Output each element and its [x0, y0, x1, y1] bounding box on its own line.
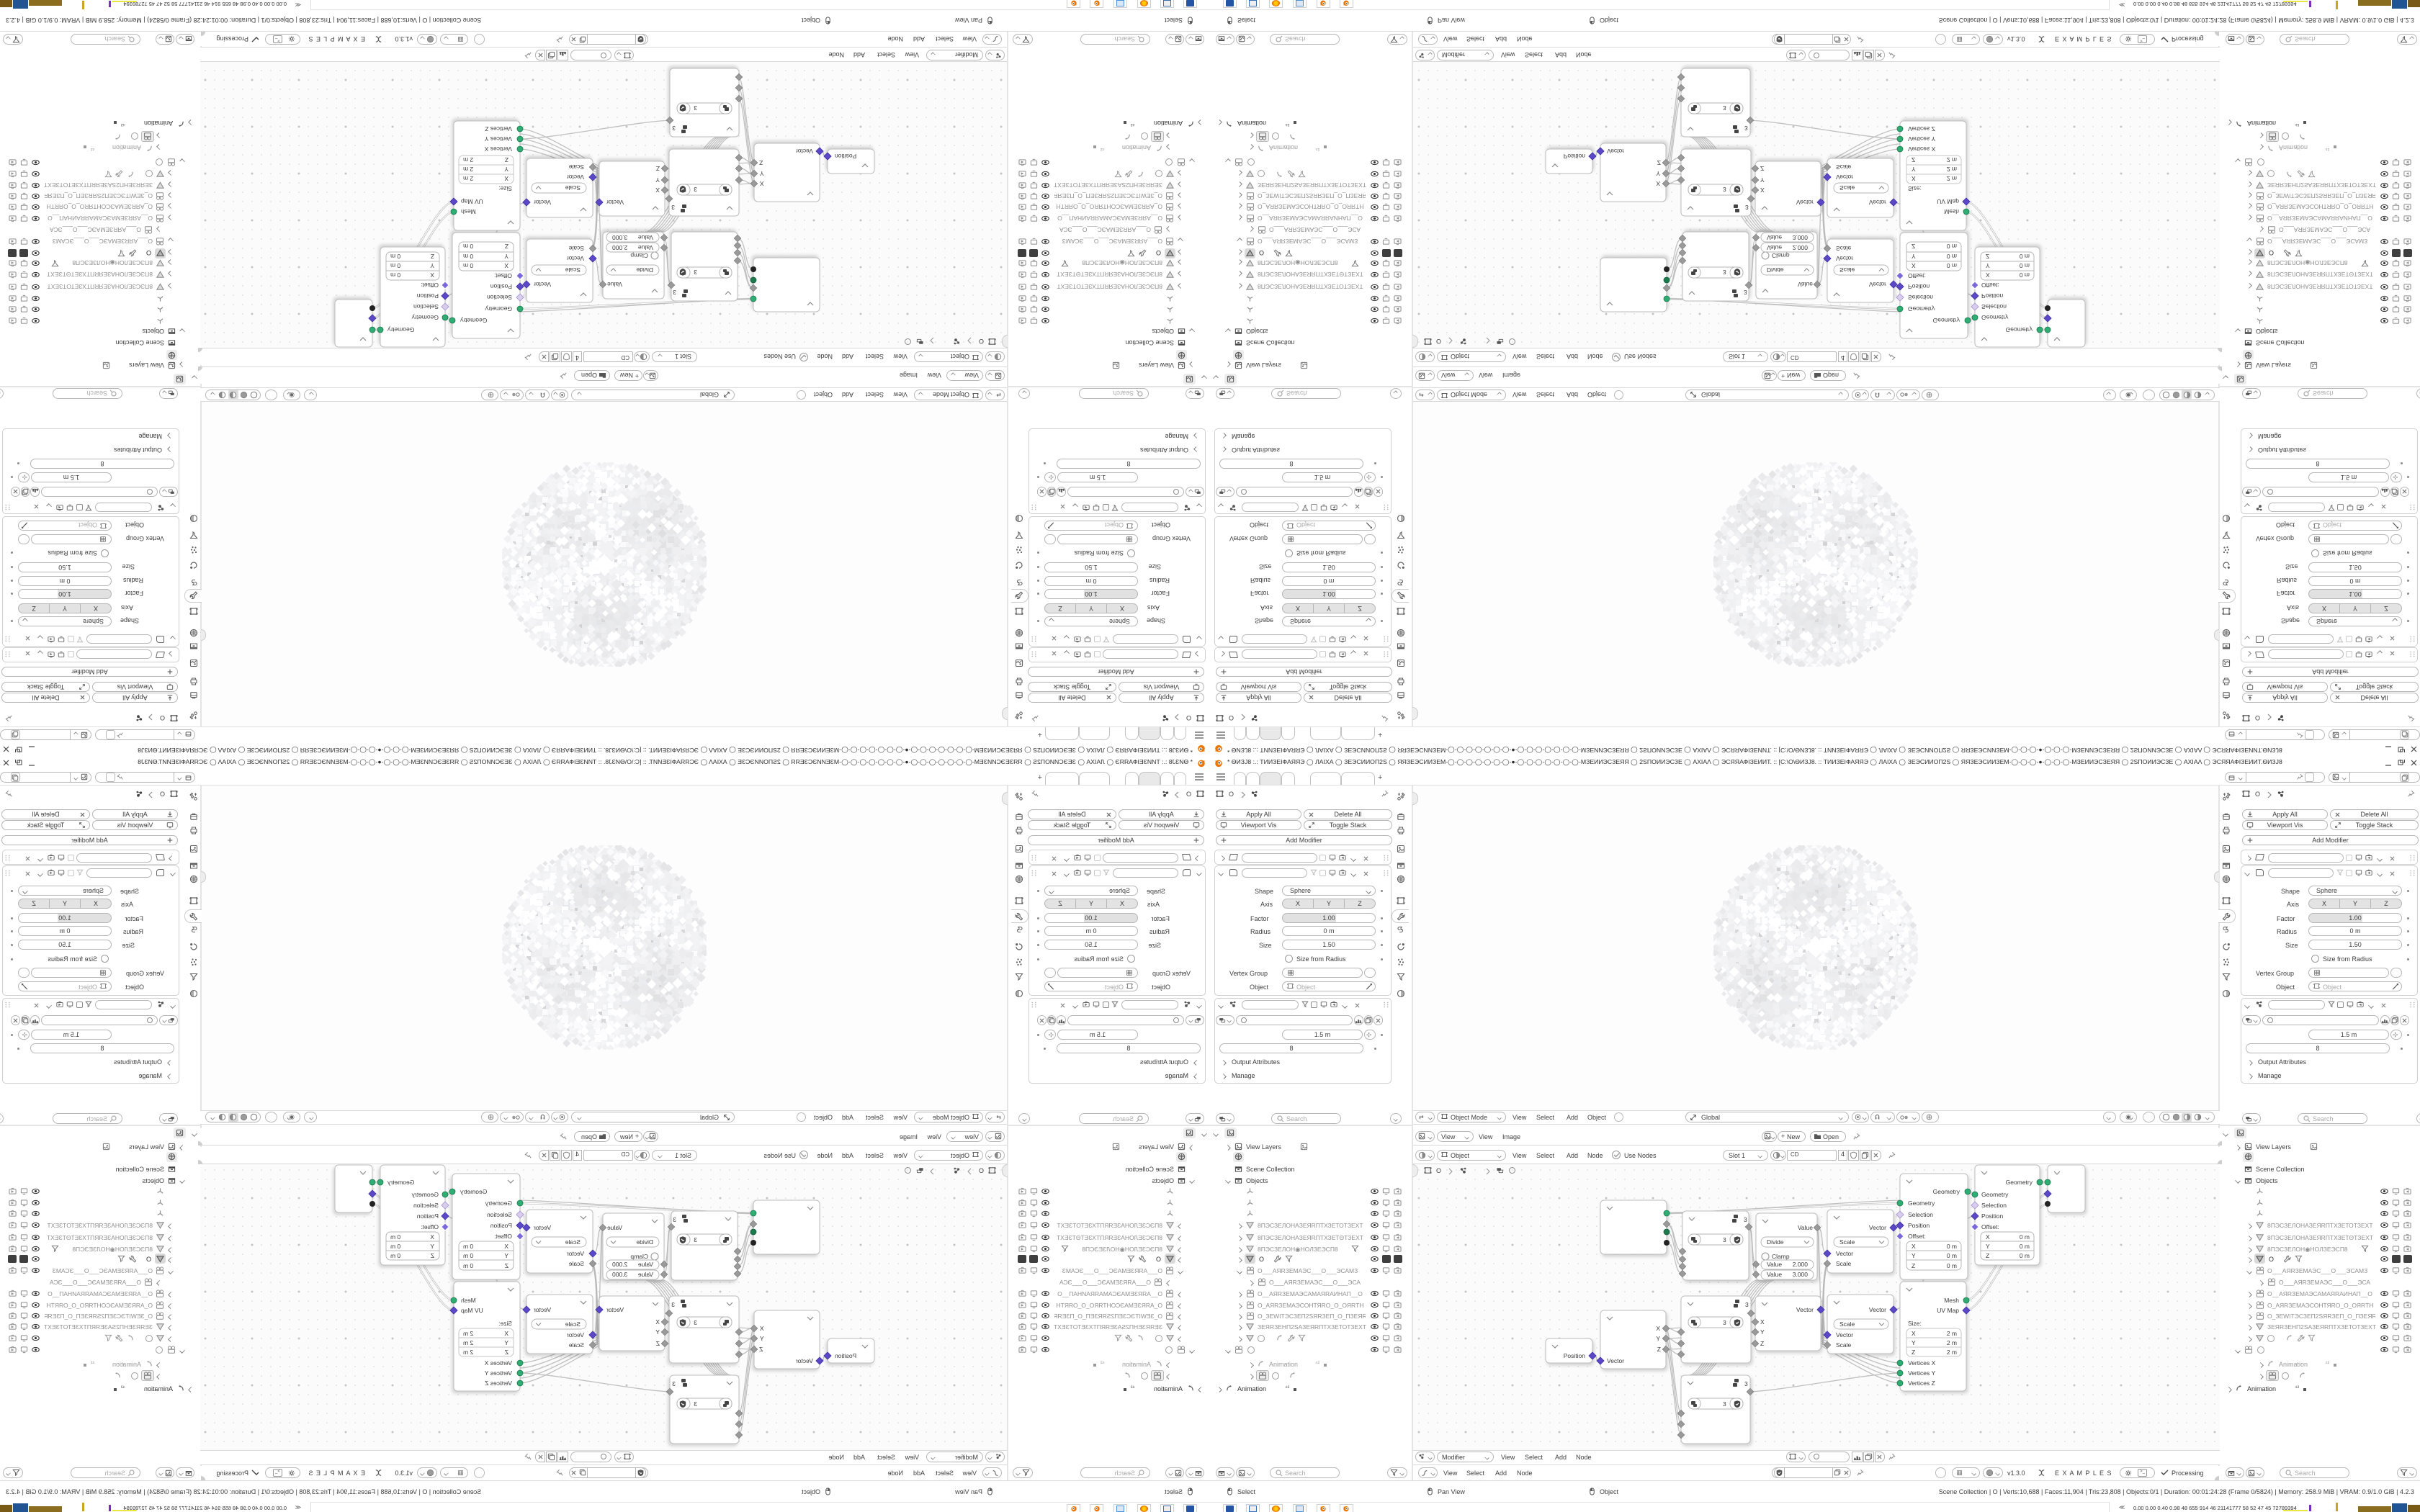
svg-text:Value: Value [1798, 1224, 1813, 1231]
svg-text:0 m: 0 m [390, 271, 400, 279]
svg-text:X: X [1656, 180, 1660, 187]
svg-text:3: 3 [1745, 204, 1749, 211]
svg-text:Position: Position [1908, 1222, 1930, 1229]
svg-text:Vector: Vector [534, 1224, 551, 1231]
svg-text:Z: Z [759, 1346, 763, 1353]
svg-text:3: 3 [694, 186, 697, 193]
svg-text:Vector: Vector [567, 1331, 584, 1338]
svg-text:Scale: Scale [1839, 1320, 1855, 1328]
svg-text:Vector: Vector [1869, 1306, 1886, 1313]
svg-text:UV Map: UV Map [1937, 198, 1959, 205]
svg-text:3: 3 [1745, 1301, 1749, 1308]
svg-text:Clamp: Clamp [1772, 252, 1790, 259]
svg-text:0 m: 0 m [390, 1252, 400, 1259]
svg-text:0 m: 0 m [2020, 1252, 2030, 1259]
svg-text:Vector: Vector [1869, 1224, 1886, 1231]
svg-text:X: X [1912, 1243, 1916, 1250]
svg-text:Y: Y [1912, 1339, 1916, 1346]
svg-text:Vertices Y: Vertices Y [1908, 1369, 1935, 1377]
svg-text:Selection: Selection [413, 1202, 439, 1209]
svg-text:0 m: 0 m [463, 1243, 473, 1250]
svg-text:Vector: Vector [606, 199, 624, 206]
svg-text:Z: Z [1986, 253, 1989, 260]
svg-text:X: X [504, 1243, 508, 1250]
svg-text:3: 3 [1744, 289, 1747, 296]
svg-text:Z: Z [1912, 1262, 1915, 1269]
svg-text:Scale: Scale [568, 1341, 584, 1349]
svg-text:Position: Position [416, 1212, 439, 1220]
svg-text:0 m: 0 m [2020, 253, 2030, 260]
svg-text:Scale: Scale [568, 245, 584, 252]
svg-text:Geometry: Geometry [1981, 314, 2009, 321]
svg-text:X: X [655, 186, 660, 194]
svg-text:Scale: Scale [565, 1238, 581, 1246]
svg-text:Vector: Vector [1796, 1306, 1814, 1313]
svg-text:Z: Z [1986, 1252, 1989, 1259]
svg-text:Geometry: Geometry [460, 1188, 487, 1195]
svg-text:Offset:: Offset: [494, 1233, 512, 1240]
svg-text:Z: Z [1912, 1349, 1915, 1356]
svg-text:2 m: 2 m [463, 1339, 473, 1346]
svg-text:Y: Y [504, 1252, 508, 1259]
svg-text:Scale: Scale [1839, 266, 1855, 274]
svg-text:X: X [655, 1318, 660, 1326]
svg-text:Vector: Vector [1836, 1250, 1853, 1257]
svg-text:X: X [760, 180, 764, 187]
svg-text:Y: Y [504, 166, 508, 173]
svg-text:Geometry: Geometry [411, 1191, 439, 1198]
svg-text:Geometry: Geometry [485, 305, 512, 312]
svg-text:Scale: Scale [568, 163, 584, 171]
svg-text:Position: Position [835, 153, 857, 160]
svg-text:Vertices X: Vertices X [1908, 145, 1936, 153]
svg-text:Geometry: Geometry [1933, 317, 1960, 324]
svg-text:Value: Value [607, 281, 622, 288]
svg-text:3.000: 3.000 [612, 1271, 628, 1278]
svg-text:Geometry: Geometry [2006, 326, 2033, 333]
svg-text:Position: Position [1981, 292, 2004, 300]
svg-text:3: 3 [694, 1319, 697, 1326]
svg-text:0 m: 0 m [1947, 243, 1957, 250]
svg-text:Mesh: Mesh [461, 208, 476, 215]
svg-text:X: X [1986, 1233, 1990, 1241]
svg-text:Vector: Vector [534, 281, 551, 288]
svg-text:Y: Y [430, 1243, 434, 1250]
svg-text:3: 3 [1723, 1400, 1726, 1408]
svg-text:Z: Z [505, 243, 508, 250]
svg-text:2 m: 2 m [1947, 1349, 1957, 1356]
svg-text:Y: Y [760, 1335, 764, 1342]
svg-text:0 m: 0 m [463, 243, 473, 250]
svg-text:Value: Value [1798, 281, 1813, 288]
svg-text:Vector: Vector [1607, 1357, 1624, 1364]
svg-text:Value: Value [1767, 234, 1782, 241]
svg-text:3: 3 [672, 125, 676, 132]
svg-text:Vertices Z: Vertices Z [485, 1380, 512, 1387]
svg-text:X: X [504, 262, 508, 269]
svg-text:Vector: Vector [796, 1357, 813, 1364]
svg-text:0 m: 0 m [2020, 262, 2030, 269]
svg-text:UV Map: UV Map [461, 198, 483, 205]
svg-text:Size:: Size: [1908, 1320, 1922, 1327]
svg-text:Value: Value [1767, 1271, 1782, 1278]
svg-text:Z: Z [505, 156, 508, 163]
svg-text:X: X [1912, 262, 1916, 269]
svg-text:0 m: 0 m [390, 262, 400, 269]
svg-text:Size:: Size: [498, 185, 512, 192]
svg-text:Position: Position [1564, 153, 1586, 160]
svg-text:2 m: 2 m [463, 156, 473, 163]
svg-text:0 m: 0 m [463, 262, 473, 269]
svg-text:Vertices X: Vertices X [484, 145, 512, 153]
svg-text:3: 3 [694, 104, 697, 112]
svg-text:X: X [504, 1330, 508, 1337]
svg-text:Z: Z [656, 165, 660, 172]
svg-text:Z: Z [505, 1262, 508, 1269]
svg-text:3: 3 [694, 1236, 697, 1243]
svg-text:Clamp: Clamp [630, 252, 648, 259]
svg-text:X: X [504, 175, 508, 182]
svg-text:Z: Z [1657, 1346, 1661, 1353]
svg-text:X: X [1986, 271, 1990, 279]
svg-text:3: 3 [673, 1216, 676, 1223]
svg-text:3: 3 [1723, 269, 1726, 276]
svg-text:Vector: Vector [1836, 174, 1853, 181]
svg-text:Selection: Selection [487, 294, 512, 301]
svg-text:3: 3 [1744, 1380, 1748, 1387]
svg-text:3.000: 3.000 [612, 234, 628, 241]
svg-text:Y: Y [1986, 1243, 1990, 1250]
svg-text:Vector: Vector [1869, 199, 1886, 206]
svg-text:X: X [1760, 186, 1765, 194]
svg-text:3.000: 3.000 [1793, 234, 1809, 241]
svg-text:Y: Y [1912, 166, 1916, 173]
svg-text:3: 3 [671, 204, 675, 211]
svg-text:Scale: Scale [1836, 245, 1852, 252]
svg-text:Position: Position [1908, 283, 1930, 290]
svg-text:Vector: Vector [567, 255, 584, 262]
svg-text:3: 3 [673, 289, 676, 296]
svg-text:Y: Y [1656, 170, 1660, 177]
svg-text:2 m: 2 m [463, 1349, 473, 1356]
svg-text:Selection: Selection [1908, 294, 1933, 301]
svg-text:Geometry: Geometry [1908, 305, 1935, 312]
svg-text:Size:: Size: [1908, 185, 1922, 192]
svg-text:3: 3 [1723, 1319, 1726, 1326]
svg-text:Selection: Selection [487, 1211, 512, 1218]
svg-text:Size:: Size: [498, 1320, 512, 1327]
svg-text:Vector: Vector [1607, 148, 1624, 155]
svg-text:Z: Z [431, 253, 434, 260]
svg-text:3: 3 [1744, 125, 1748, 132]
svg-text:X: X [760, 1325, 764, 1332]
svg-text:Offset:: Offset: [1908, 1233, 1926, 1240]
svg-text:Z: Z [505, 1349, 508, 1356]
svg-text:Geometry: Geometry [411, 314, 439, 321]
svg-text:Position: Position [1981, 1212, 2004, 1220]
svg-text:Z: Z [656, 1340, 660, 1347]
svg-text:Selection: Selection [1981, 303, 2007, 310]
svg-text:0 m: 0 m [1947, 1252, 1957, 1259]
svg-text:Y: Y [1656, 1335, 1660, 1342]
svg-text:0 m: 0 m [463, 1252, 473, 1259]
svg-text:Vector: Vector [534, 1306, 551, 1313]
svg-text:3: 3 [671, 1301, 675, 1308]
svg-text:Scale: Scale [1839, 184, 1855, 192]
svg-text:Value: Value [638, 1261, 653, 1268]
svg-text:Y: Y [430, 262, 434, 269]
svg-text:Vector: Vector [1869, 281, 1886, 288]
svg-text:Y: Y [504, 1339, 508, 1346]
svg-text:2 m: 2 m [1947, 1339, 1957, 1346]
svg-text:Geometry: Geometry [1908, 1200, 1935, 1207]
svg-text:Vertices Z: Vertices Z [1908, 1380, 1935, 1387]
svg-text:0 m: 0 m [463, 253, 473, 260]
svg-text:Divide: Divide [636, 1238, 653, 1246]
svg-text:Vertices Y: Vertices Y [485, 135, 512, 143]
svg-text:Scale: Scale [565, 266, 581, 274]
svg-text:Y: Y [1912, 253, 1916, 260]
svg-text:Vertices Z: Vertices Z [1908, 125, 1935, 132]
svg-text:Vertices X: Vertices X [484, 1359, 512, 1367]
svg-text:Vector: Vector [1836, 255, 1853, 262]
svg-text:X: X [1912, 175, 1916, 182]
svg-text:0 m: 0 m [2020, 1233, 2030, 1241]
svg-text:X: X [1656, 1325, 1660, 1332]
svg-text:Vector: Vector [1836, 1331, 1853, 1338]
svg-text:Vector: Vector [534, 199, 551, 206]
svg-text:Clamp: Clamp [630, 1253, 648, 1260]
svg-text:Geometry: Geometry [387, 1179, 414, 1186]
svg-text:Vector: Vector [796, 148, 813, 155]
svg-text:Geometry: Geometry [1981, 1191, 2009, 1198]
svg-text:Scale: Scale [568, 1260, 584, 1267]
svg-text:Y: Y [1912, 1252, 1916, 1259]
svg-text:Z: Z [1912, 243, 1915, 250]
svg-text:Offset:: Offset: [421, 1223, 439, 1230]
svg-text:0 m: 0 m [390, 1243, 400, 1250]
svg-text:3: 3 [694, 269, 697, 276]
svg-text:Z: Z [1760, 165, 1764, 172]
svg-text:X: X [430, 271, 434, 279]
svg-text:Y: Y [504, 253, 508, 260]
svg-text:Position: Position [490, 1222, 512, 1229]
svg-text:Offset:: Offset: [1981, 282, 1999, 289]
svg-text:Y: Y [1760, 176, 1765, 184]
svg-text:0 m: 0 m [390, 1233, 400, 1241]
svg-text:3: 3 [1723, 104, 1726, 112]
svg-text:Position: Position [835, 1352, 857, 1359]
svg-text:2.000: 2.000 [612, 244, 628, 251]
svg-text:Geometry: Geometry [2006, 1179, 2033, 1186]
svg-text:Clamp: Clamp [1772, 1253, 1790, 1260]
svg-text:0 m: 0 m [463, 1262, 473, 1269]
svg-text:Value: Value [1767, 244, 1782, 251]
svg-text:Geometry: Geometry [387, 326, 414, 333]
svg-text:Z: Z [759, 159, 763, 166]
svg-text:3: 3 [672, 1380, 676, 1387]
svg-text:Divide: Divide [1767, 1238, 1784, 1246]
svg-text:3: 3 [1723, 1236, 1726, 1243]
svg-text:2.000: 2.000 [1793, 244, 1809, 251]
svg-text:2 m: 2 m [463, 175, 473, 182]
svg-text:Mesh: Mesh [1944, 208, 1959, 215]
svg-text:3: 3 [1723, 186, 1726, 193]
svg-text:Z: Z [431, 1252, 434, 1259]
svg-text:Offset:: Offset: [1908, 272, 1926, 279]
svg-text:0 m: 0 m [2020, 271, 2030, 279]
svg-text:Selection: Selection [1908, 1211, 1933, 1218]
svg-text:Offset:: Offset: [1981, 1223, 1999, 1230]
svg-text:Scale: Scale [1836, 1260, 1852, 1267]
svg-text:Vector: Vector [567, 174, 584, 181]
svg-text:Offset:: Offset: [494, 272, 512, 279]
svg-text:Selection: Selection [413, 303, 439, 310]
svg-text:Vertices Z: Vertices Z [485, 125, 512, 132]
svg-text:Mesh: Mesh [461, 1297, 476, 1304]
svg-text:X: X [1760, 1318, 1765, 1326]
svg-text:3: 3 [1744, 1216, 1747, 1223]
svg-text:Y: Y [655, 176, 660, 184]
svg-text:Scale: Scale [1836, 1341, 1852, 1349]
svg-text:0 m: 0 m [2020, 1243, 2030, 1250]
svg-text:Scale: Scale [1836, 163, 1852, 171]
svg-text:Geometry: Geometry [460, 317, 487, 324]
svg-text:Z: Z [1760, 1340, 1764, 1347]
svg-text:0 m: 0 m [390, 253, 400, 260]
svg-text:0 m: 0 m [1947, 1243, 1957, 1250]
svg-text:Value: Value [607, 1224, 622, 1231]
svg-text:3.000: 3.000 [1793, 1271, 1809, 1278]
svg-text:Vector: Vector [1796, 199, 1814, 206]
svg-text:Geometry: Geometry [485, 1200, 512, 1207]
svg-text:Selection: Selection [1981, 1202, 2007, 1209]
svg-text:Scale: Scale [565, 1320, 581, 1328]
svg-text:Vector: Vector [567, 1250, 584, 1257]
svg-text:Position: Position [416, 292, 439, 300]
svg-text:Scale: Scale [565, 184, 581, 192]
svg-text:Value: Value [638, 1271, 653, 1278]
svg-text:2 m: 2 m [1947, 175, 1957, 182]
svg-text:2.000: 2.000 [612, 1261, 628, 1268]
svg-text:Geometry: Geometry [1933, 1188, 1960, 1195]
svg-text:Value: Value [638, 244, 653, 251]
svg-text:0 m: 0 m [1947, 262, 1957, 269]
svg-text:Y: Y [760, 170, 764, 177]
svg-text:0 m: 0 m [1947, 1262, 1957, 1269]
svg-text:3: 3 [694, 1400, 697, 1408]
svg-text:Scale: Scale [1839, 1238, 1855, 1246]
svg-text:Vertices Y: Vertices Y [485, 1369, 512, 1377]
svg-text:Y: Y [1760, 1328, 1765, 1336]
svg-text:Vertices X: Vertices X [1908, 1359, 1936, 1367]
svg-text:Y: Y [655, 1328, 660, 1336]
svg-text:2 m: 2 m [463, 166, 473, 173]
svg-text:2 m: 2 m [1947, 1330, 1957, 1337]
svg-text:Divide: Divide [1767, 266, 1784, 274]
svg-text:Vector: Vector [606, 1306, 624, 1313]
svg-text:Position: Position [1564, 1352, 1586, 1359]
svg-text:Y: Y [1986, 262, 1990, 269]
svg-text:UV Map: UV Map [1937, 1307, 1959, 1314]
svg-text:Value: Value [1767, 1261, 1782, 1268]
svg-text:Mesh: Mesh [1944, 1297, 1959, 1304]
svg-text:2 m: 2 m [1947, 156, 1957, 163]
svg-text:X: X [1912, 1330, 1916, 1337]
svg-text:Z: Z [1657, 159, 1661, 166]
svg-text:Divide: Divide [636, 266, 653, 274]
svg-text:Offset:: Offset: [421, 282, 439, 289]
svg-text:2.000: 2.000 [1793, 1261, 1809, 1268]
svg-text:X: X [430, 1233, 434, 1241]
svg-text:0 m: 0 m [1947, 253, 1957, 260]
svg-text:Z: Z [1912, 156, 1915, 163]
svg-text:Position: Position [490, 283, 512, 290]
svg-text:2 m: 2 m [463, 1330, 473, 1337]
svg-text:Vertices Y: Vertices Y [1908, 135, 1935, 143]
svg-text:2 m: 2 m [1947, 166, 1957, 173]
svg-text:Value: Value [638, 234, 653, 241]
svg-text:UV Map: UV Map [461, 1307, 483, 1314]
